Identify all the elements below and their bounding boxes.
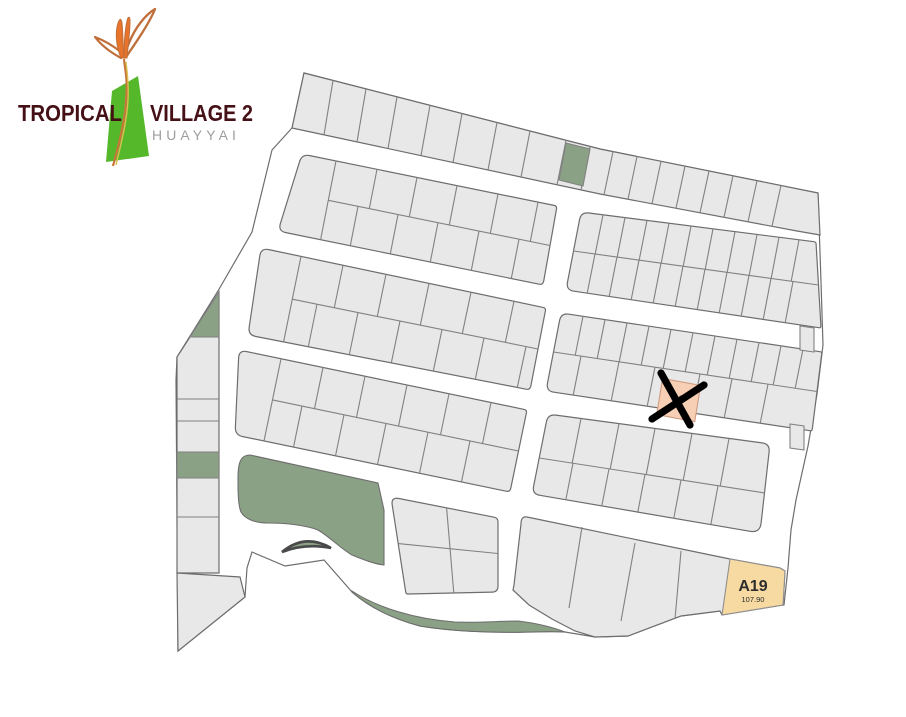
svg-text:107.90: 107.90 — [742, 595, 765, 604]
svg-text:A19: A19 — [738, 578, 767, 595]
svg-text:VILLAGE 2: VILLAGE 2 — [150, 100, 253, 126]
svg-text:TROPICAL: TROPICAL — [18, 100, 122, 126]
svg-text:HUAYYAI: HUAYYAI — [152, 128, 240, 143]
